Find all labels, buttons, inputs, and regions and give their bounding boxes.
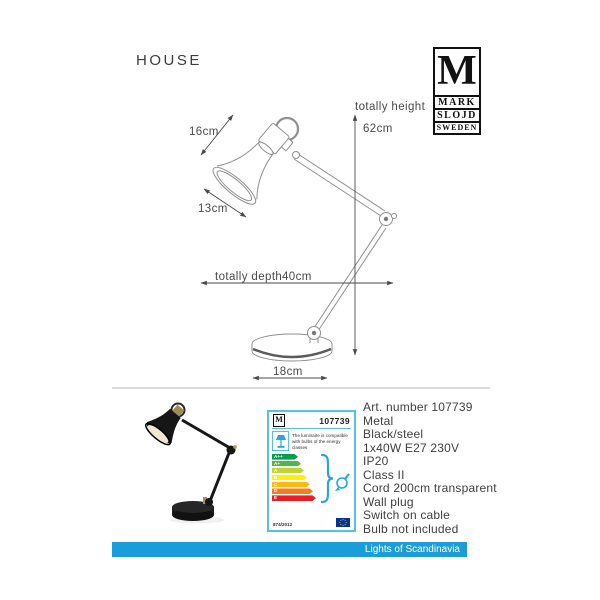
spec-line: Bulb not included [363, 523, 497, 537]
energy-class-arrow: B [272, 475, 307, 481]
energy-art-number: 107739 [319, 416, 350, 426]
energy-classes: A++A+ABCDE [272, 454, 351, 504]
product-photo [118, 398, 258, 546]
dim-shade-width: 13cm [198, 203, 228, 215]
table-lamp-icon [272, 431, 289, 451]
dim-depth-label: totally depth [215, 271, 282, 283]
energy-class-arrow: E [272, 495, 316, 501]
energy-class-arrow: D [272, 488, 313, 494]
eu-flag-icon [336, 518, 350, 527]
footer-banner: Lights of Scandinavia [112, 542, 467, 557]
spec-line: 1x40W E27 230V [363, 442, 497, 456]
brace-glyph [322, 455, 333, 502]
spec-line: IP20 [363, 455, 497, 469]
energy-brand-m-icon: M [273, 414, 285, 427]
energy-label-footer: 874/2012 [272, 518, 351, 527]
lamp-technical-drawing: 16cm 13cm totally height 62cm totally de… [105, 85, 505, 387]
energy-label-header: M 107739 [272, 414, 351, 429]
energy-regulation: 874/2012 [273, 522, 292, 527]
energy-class-arrow: A [272, 468, 304, 474]
brace-and-bulb [319, 453, 353, 510]
product-sheet: HOUSE M MARK SLÖJD SWEDEN [0, 0, 600, 600]
spec-line: Switch on cable [363, 509, 497, 523]
dim-shade-height: 16cm [189, 126, 219, 138]
spec-line: Wall plug [363, 496, 497, 510]
page-title: HOUSE [136, 52, 202, 69]
dim-height-label: totally height [355, 101, 426, 113]
energy-class-arrow: A++ [272, 454, 298, 460]
bulb-icon [335, 474, 349, 491]
energy-class-arrow: C [272, 482, 310, 488]
spec-line: Class II [363, 469, 497, 483]
dim-base-width: 18cm [273, 366, 303, 378]
spec-list: Art. number 107739 Metal Black/steel 1x4… [363, 401, 497, 536]
spec-line: Metal [363, 415, 497, 429]
energy-compat-text: The luminaire is compatible with bulbs o… [292, 431, 351, 451]
spec-line: Art. number 107739 [363, 401, 497, 415]
spec-line: Cord 200cm transparent [363, 482, 497, 496]
footer-banner-text: Lights of Scandinavia [365, 544, 460, 555]
dim-depth-value: 40cm [282, 271, 312, 283]
spec-line: Black/steel [363, 428, 497, 442]
energy-compat-row: The luminaire is compatible with bulbs o… [272, 431, 351, 451]
lamp-drawing-art [209, 112, 397, 361]
dim-height-value: 62cm [363, 123, 393, 135]
section-divider [112, 387, 490, 389]
energy-class-arrow: A+ [272, 461, 301, 467]
energy-label: M 107739 The luminaire is compatible wit… [267, 410, 356, 532]
